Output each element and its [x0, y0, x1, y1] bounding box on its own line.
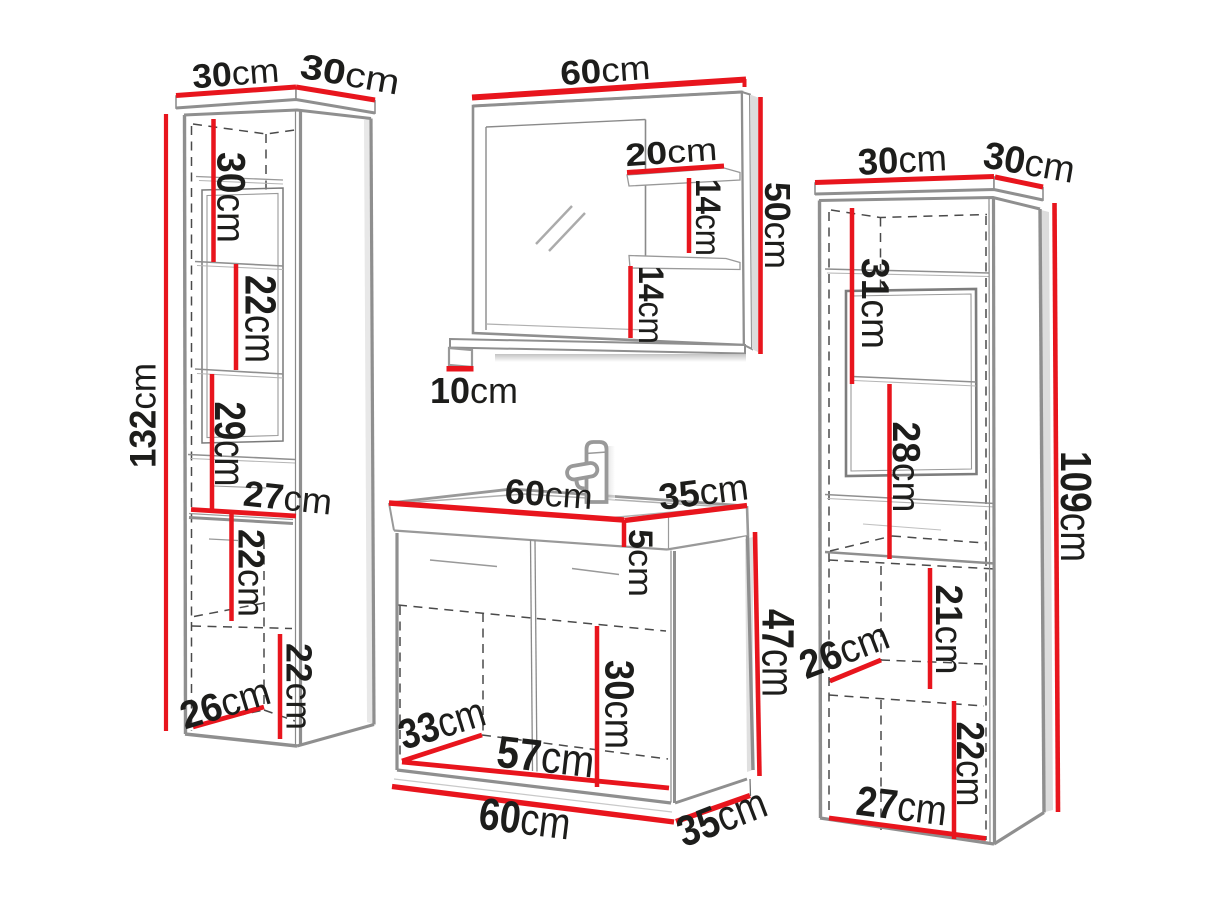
svg-text:132cm: 132cm — [123, 363, 164, 468]
svg-text:30cm: 30cm — [209, 152, 253, 243]
svg-text:28cm: 28cm — [884, 422, 927, 513]
svg-text:109cm: 109cm — [1051, 451, 1100, 562]
svg-text:20cm: 20cm — [624, 131, 718, 173]
svg-text:22cm: 22cm — [948, 722, 991, 807]
svg-text:30cm: 30cm — [191, 52, 281, 97]
svg-text:31cm: 31cm — [853, 258, 896, 349]
svg-text:10cm: 10cm — [430, 370, 518, 411]
svg-text:30cm: 30cm — [597, 660, 643, 749]
svg-text:22cm: 22cm — [236, 275, 285, 363]
svg-text:21cm: 21cm — [927, 585, 969, 675]
svg-text:14cm: 14cm — [688, 179, 727, 256]
svg-text:60cm: 60cm — [504, 472, 595, 517]
svg-text:50cm: 50cm — [757, 182, 798, 269]
svg-text:22cm: 22cm — [279, 643, 320, 730]
svg-text:5cm: 5cm — [621, 529, 659, 597]
svg-text:30cm: 30cm — [857, 137, 948, 183]
svg-text:14cm: 14cm — [631, 266, 670, 344]
svg-text:22cm: 22cm — [231, 529, 273, 617]
svg-text:60cm: 60cm — [559, 49, 651, 93]
